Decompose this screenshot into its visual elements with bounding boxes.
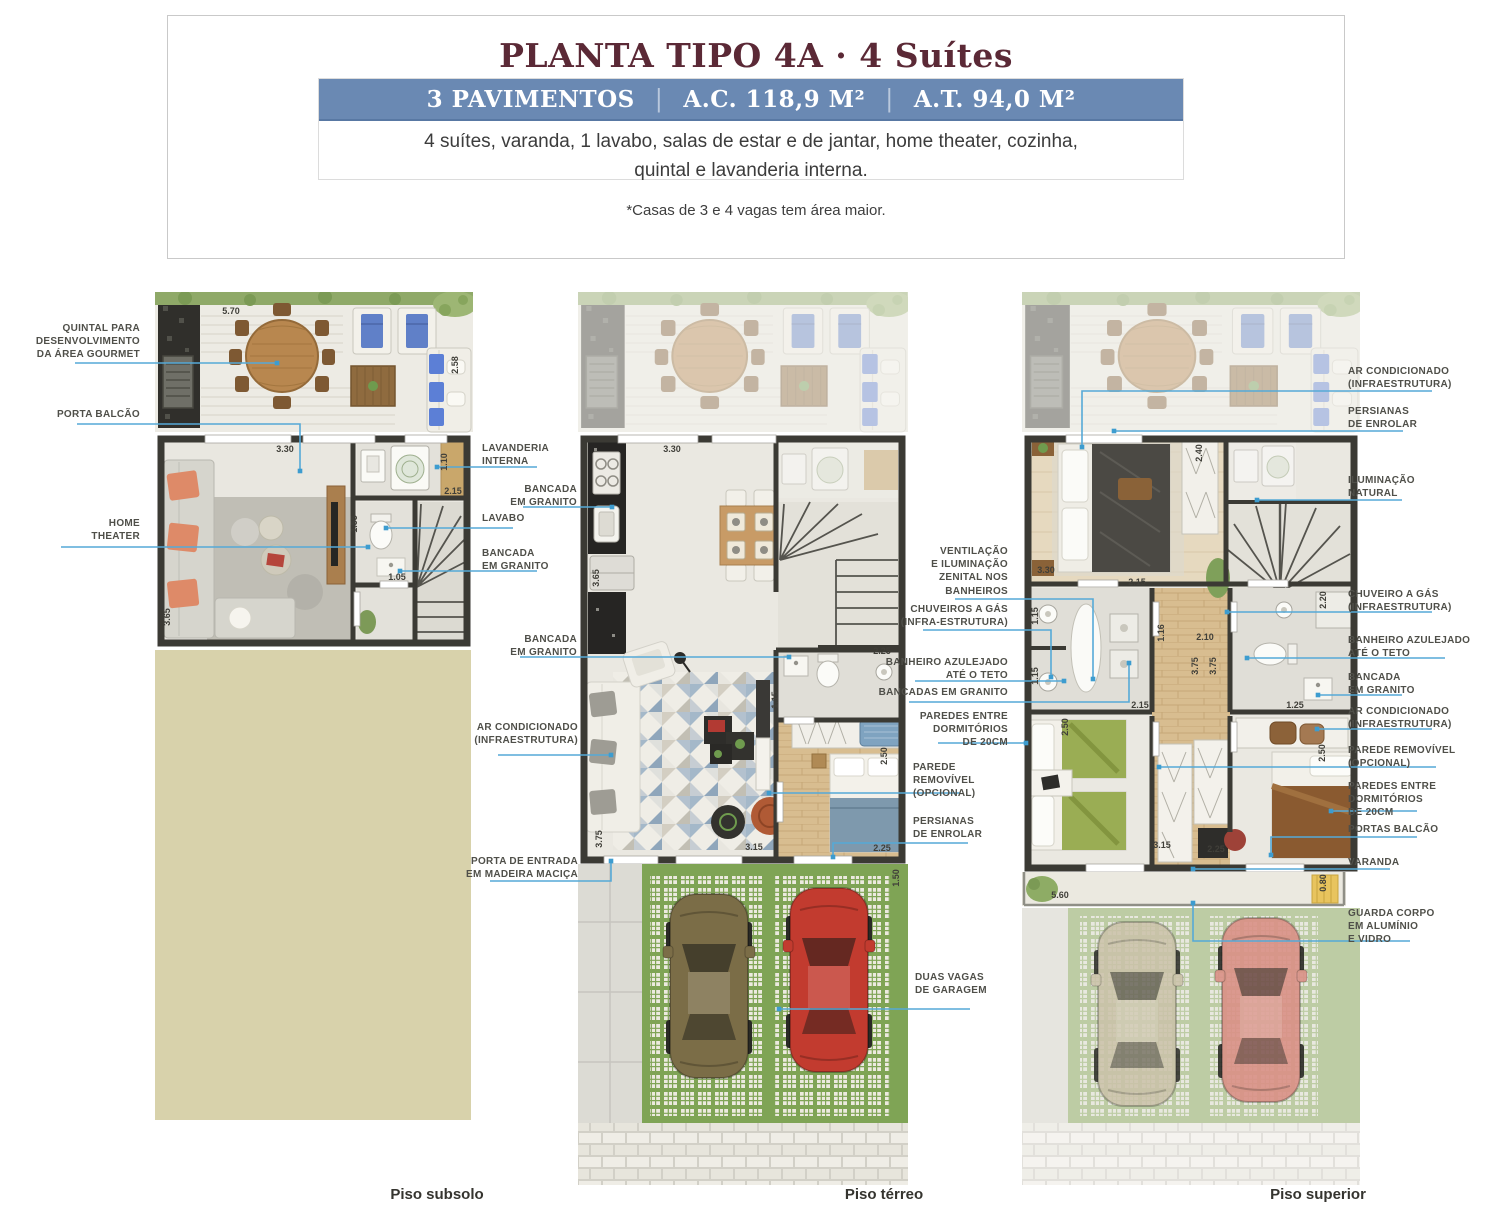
banner-area-total: A.T. 94,0 M² (914, 86, 1076, 113)
plan-label: PERSIANAS DE ENROLAR (1348, 405, 1458, 431)
washing-machine (391, 446, 429, 490)
master-suite (1028, 438, 1226, 584)
plan-label: PAREDES ENTRE DORMITÓRIOS DE 20CM (1348, 780, 1458, 820)
single-bed (1272, 752, 1356, 858)
plan-label: PERSIANAS DE ENROLAR (913, 815, 1013, 841)
banner-pavimentos: 3 PAVIMENTOS (427, 86, 635, 113)
ottoman (711, 805, 745, 839)
plan-label: BANHEIRO AZULEJADO ATÉ O TETO (1348, 634, 1488, 660)
suite-bathroom (1230, 588, 1354, 712)
lavabo (357, 502, 413, 642)
plan-label: BANCADA EM GRANITO (477, 483, 577, 509)
header-card: PLANTA TIPO 4A · 4 Suítes 3 PAVIMENTOS |… (167, 15, 1345, 259)
plan-label: PAREDES ENTRE DORMITÓRIOS DE 20CM (908, 710, 1008, 750)
plan-label: BANCADA EM GRANITO (482, 547, 582, 573)
sidewalk (1022, 1123, 1360, 1185)
sidewalk (578, 1123, 908, 1185)
banner-separator: | (655, 85, 664, 113)
garage-ghost (1022, 908, 1360, 1123)
wardrobe (1182, 442, 1218, 534)
plan-label: CHUVEIRO A GÁS (INFRAESTRUTURA) (1348, 588, 1473, 614)
floor-plan-superior-svg (1022, 292, 1360, 1185)
suite-bathroom (778, 652, 902, 718)
caption-piso-subsolo: Piso subsolo (390, 1186, 483, 1203)
page: PLANTA TIPO 4A · 4 Suítes 3 PAVIMENTOS |… (0, 0, 1500, 1219)
single-bed (1030, 792, 1126, 850)
master-bed (1058, 444, 1170, 572)
plan-label: ILUMINAÇÃO NATURAL (1348, 474, 1458, 500)
description: 4 suítes, varanda, 1 lavabo, salas de es… (319, 121, 1183, 185)
terrain-patch (155, 650, 471, 1120)
plan-label: PORTA BALCÃO (30, 408, 140, 421)
laundry-area (357, 440, 469, 498)
plan-label: LAVANDERIA INTERNA (482, 442, 577, 468)
suite (778, 718, 902, 860)
plan-label: VENTILAÇÃO E ILUMINAÇÃO ZENITAL NOS BANH… (908, 545, 1008, 598)
plan-label: PAREDE REMOVÍVEL (OPCIONAL) (913, 761, 1013, 801)
description-line: 4 suítes, varanda, 1 lavabo, salas de es… (319, 128, 1183, 157)
plan-label: AR CONDICIONADO (INFRAESTRUTURA) (1348, 365, 1473, 391)
floor-plan-subsolo-svg (155, 292, 473, 1120)
varanda (1022, 872, 1346, 906)
stairs (1226, 502, 1352, 594)
caption-piso-terreo: Piso térreo (845, 1186, 923, 1203)
plan-label: AR CONDICIONADO (INFRAESTRUTURA) (458, 721, 578, 747)
banner-separator: | (885, 85, 894, 113)
floor-plan-subsolo (155, 292, 473, 1120)
laundry-ghost (1230, 440, 1296, 500)
plan-label: VARANDA (1348, 856, 1438, 869)
stairs (417, 502, 469, 642)
floor-plan-terreo-svg (578, 292, 908, 1185)
floor-plan-superior (1022, 292, 1360, 1185)
specs-banner: 3 PAVIMENTOS | A.C. 118,9 M² | A.T. 94,0… (319, 79, 1183, 121)
page-title: PLANTA TIPO 4A · 4 Suítes (168, 36, 1344, 75)
tv-console (756, 680, 770, 738)
single-bed (1030, 720, 1126, 778)
plan-label: BANCADA EM GRANITO (1348, 671, 1458, 697)
plan-label: AR CONDICIONADO (INFRAESTRUTURA) (1348, 705, 1473, 731)
plan-label: BANCADA EM GRANITO (477, 633, 577, 659)
plan-label: QUINTAL PARA DESENVOLVIMENTO DA ÁREA GOU… (30, 322, 140, 362)
plan-label: LAVABO (482, 512, 552, 525)
footnote: *Casas de 3 e 4 vagas tem área maior. (168, 202, 1344, 219)
tv-console (327, 486, 345, 584)
living-sofa (586, 682, 640, 832)
bench (1312, 875, 1338, 903)
caption-piso-superior: Piso superior (1270, 1186, 1366, 1203)
suite-bed (830, 754, 902, 852)
laundry-ghost (778, 440, 902, 498)
floor-plan-terreo (578, 292, 908, 1185)
plan-label: PORTAS BALCÃO (1348, 823, 1458, 836)
stairs (778, 502, 898, 647)
plan-label: PAREDE REMOVÍVEL (OPCIONAL) (1348, 744, 1478, 770)
bathrooms (1028, 588, 1152, 712)
plan-label: GUARDA CORPO EM ALUMÍNIO E VIDRO (1348, 907, 1458, 947)
description-line: quintal e lavanderia interna. (319, 157, 1183, 186)
garage (578, 864, 908, 1123)
banner-area-construida: A.C. 118,9 M² (683, 86, 865, 113)
info-box: 3 PAVIMENTOS | A.C. 118,9 M² | A.T. 94,0… (318, 78, 1184, 180)
plan-label: HOME THEATER (30, 517, 140, 543)
plan-label: DUAS VAGAS DE GARAGEM (915, 971, 1015, 997)
